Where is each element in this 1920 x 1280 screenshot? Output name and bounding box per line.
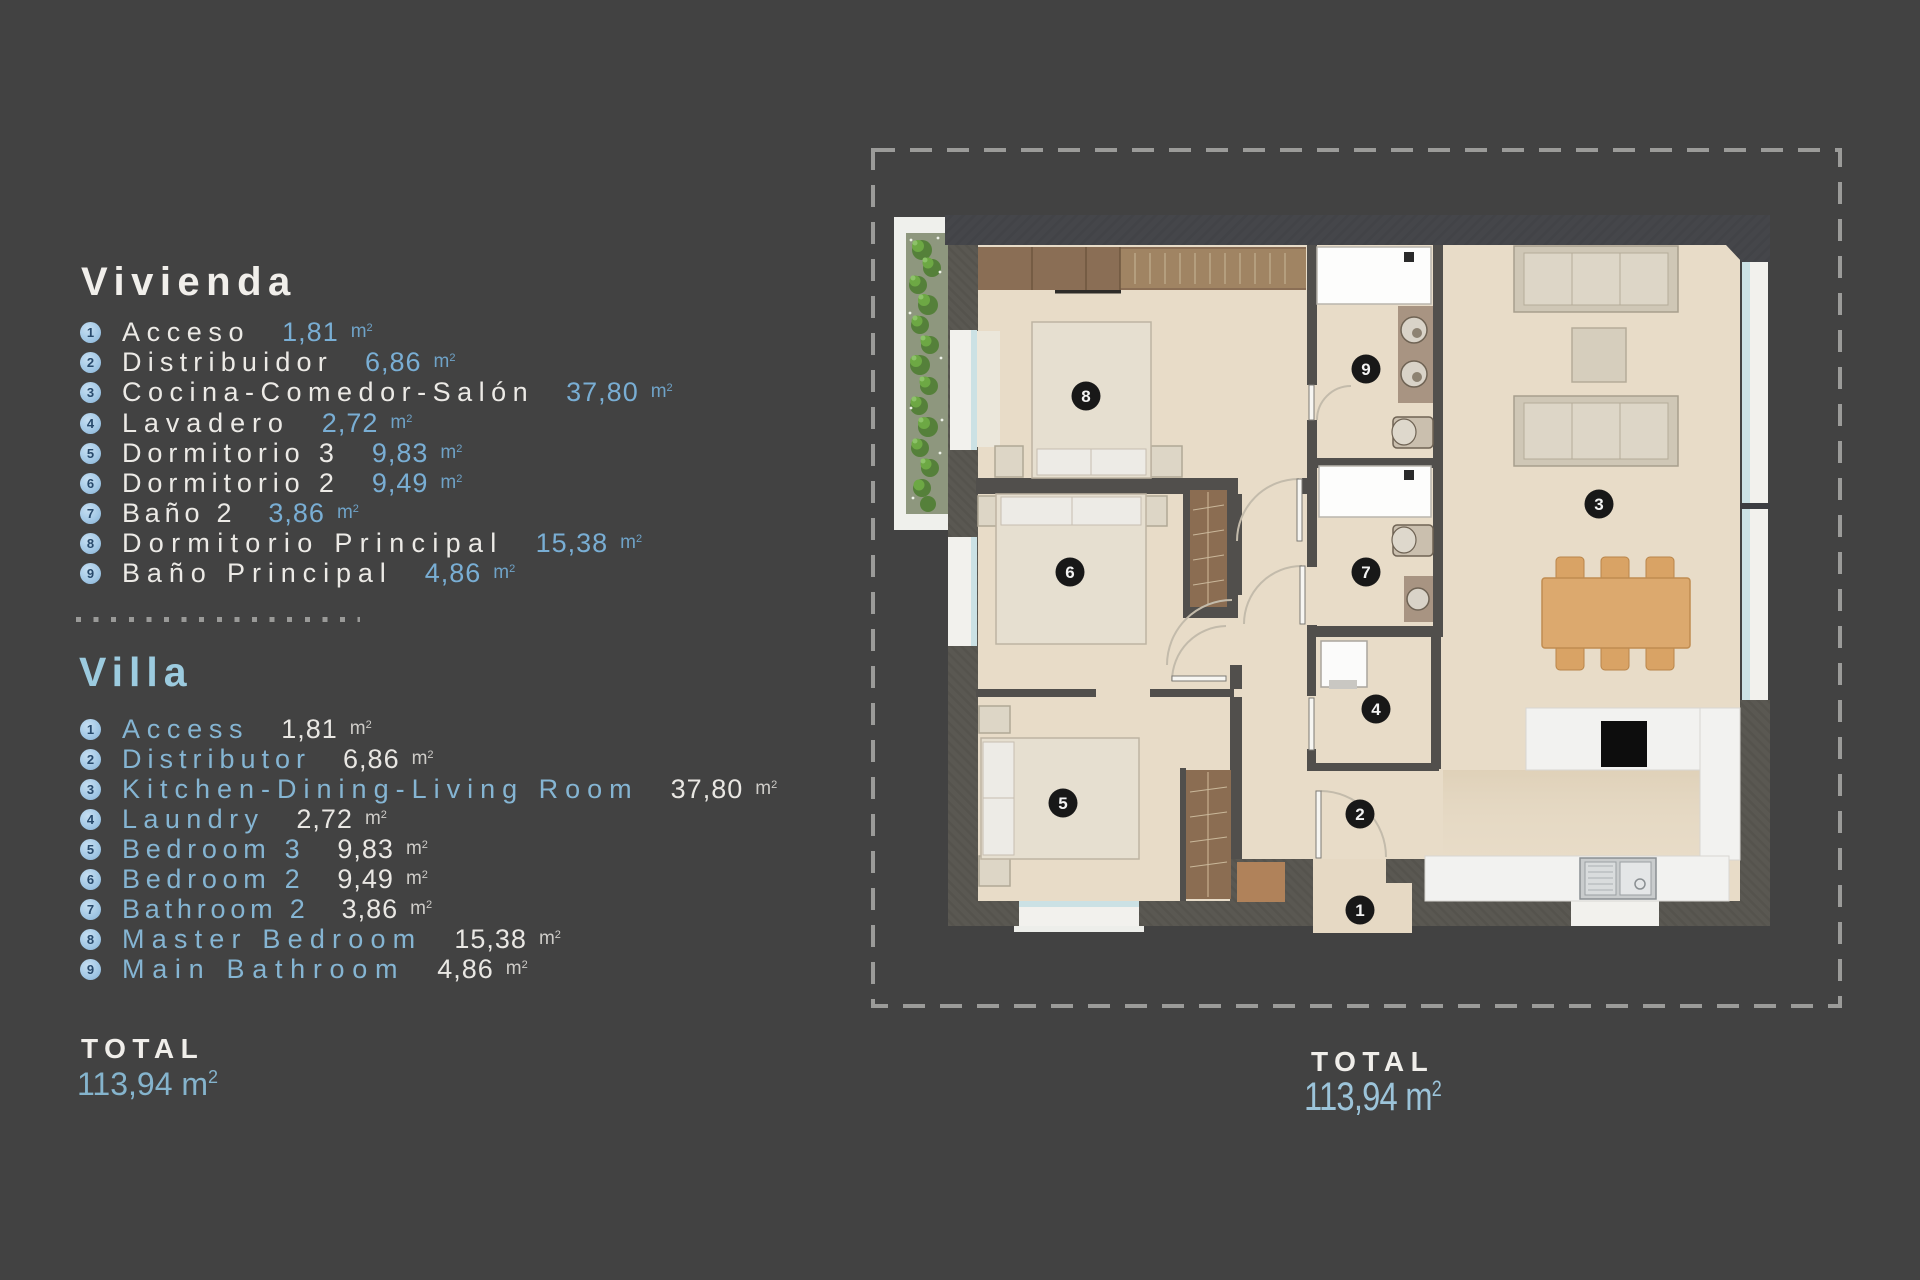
svg-text:8: 8 (1081, 387, 1090, 406)
svg-text:3: 3 (1594, 495, 1603, 514)
svg-text:4: 4 (1371, 700, 1381, 719)
svg-text:2: 2 (1355, 805, 1364, 824)
svg-text:9: 9 (1361, 360, 1370, 379)
svg-text:7: 7 (1361, 563, 1370, 582)
svg-text:1: 1 (1355, 901, 1364, 920)
svg-text:5: 5 (1058, 794, 1067, 813)
svg-text:6: 6 (1065, 563, 1074, 582)
